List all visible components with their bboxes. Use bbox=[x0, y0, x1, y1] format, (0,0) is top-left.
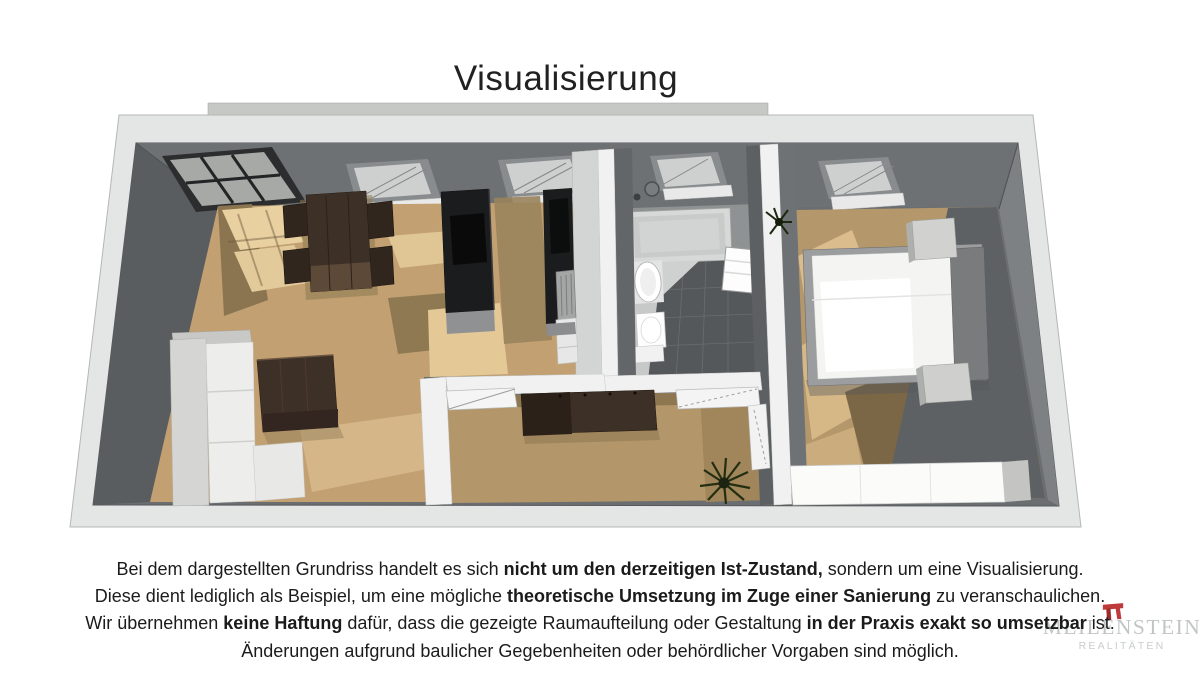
page-title: Visualisierung bbox=[0, 59, 1132, 99]
slide: Visualisierung MEILENSTEIN REALITÄTEN Be… bbox=[0, 0, 1200, 675]
sink bbox=[633, 260, 664, 304]
sofa-chaise bbox=[253, 442, 305, 501]
vent-icon bbox=[645, 182, 659, 196]
wardrobe-end bbox=[1002, 460, 1031, 502]
disclaimer-text: Bei dem dargestellten Grundriss handelt … bbox=[0, 556, 1200, 665]
disclaimer-line: Bei dem dargestellten Grundriss handelt … bbox=[0, 556, 1200, 583]
ceiling-spot-icon bbox=[634, 194, 641, 201]
dining-chair bbox=[283, 248, 311, 284]
nightstand bbox=[922, 363, 972, 403]
disclaimer-line: Änderungen aufgrund baulicher Gegebenhei… bbox=[0, 638, 1200, 665]
nightstand bbox=[912, 218, 957, 260]
kitchen-island bbox=[441, 189, 495, 334]
disclaimer-line: Diese dient lediglich als Beispiel, um e… bbox=[0, 583, 1200, 610]
bathroom bbox=[627, 182, 768, 382]
toilet bbox=[633, 312, 666, 363]
dining-chair bbox=[366, 201, 394, 239]
door-living-icon bbox=[446, 388, 517, 410]
wardrobe bbox=[790, 462, 1005, 505]
coffee-table bbox=[257, 355, 344, 444]
disclaimer-line: Wir übernehmen keine Haftung dafür, dass… bbox=[0, 610, 1200, 637]
bed-headboard bbox=[950, 247, 989, 382]
